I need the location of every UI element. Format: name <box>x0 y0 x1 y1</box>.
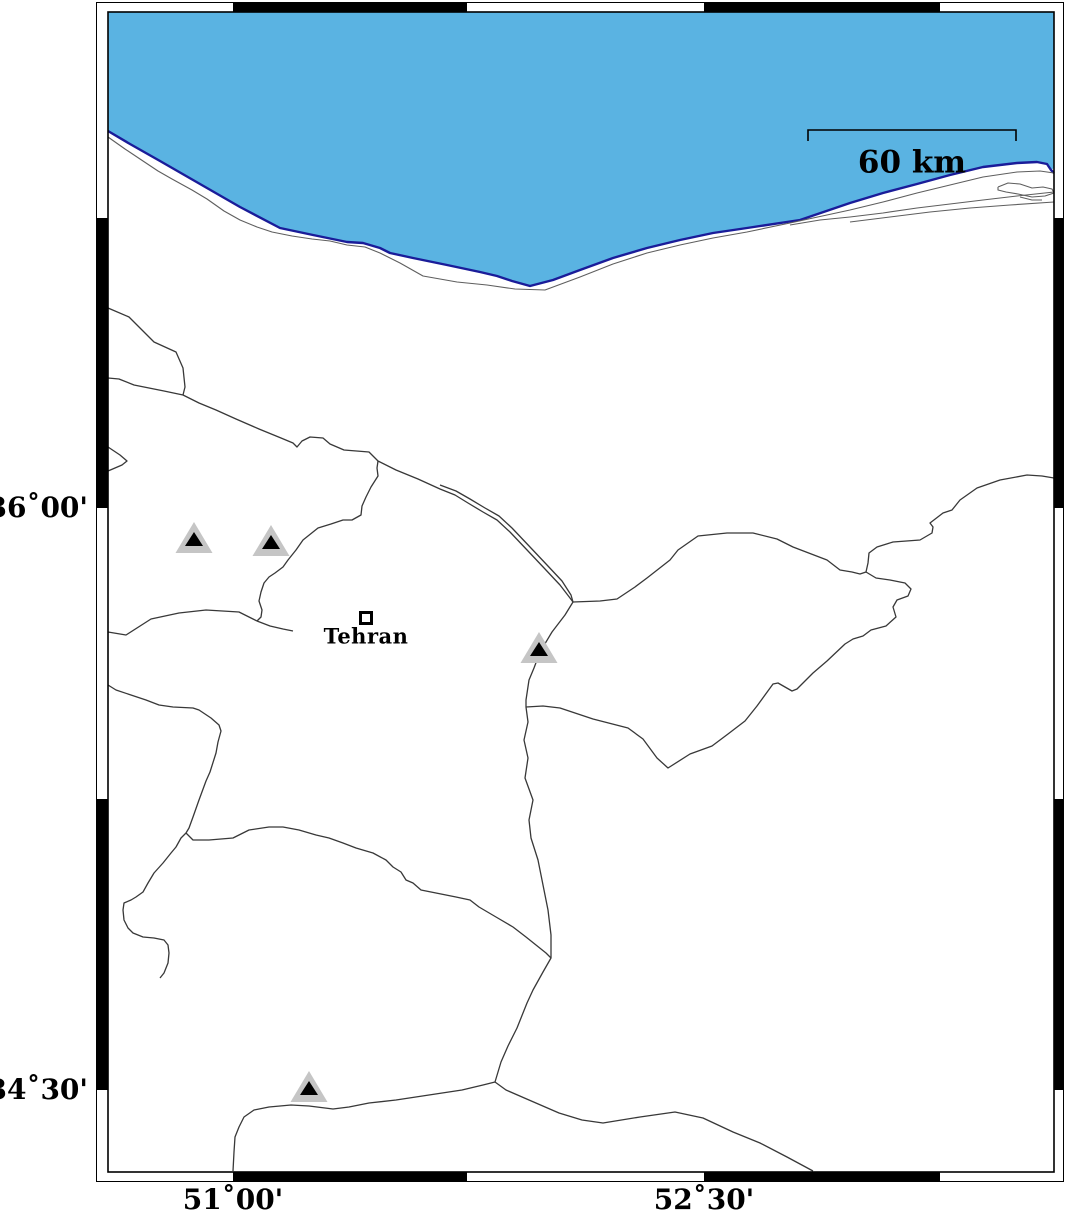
scalebar-label: 60 km <box>858 148 966 179</box>
lat-label-34-30: 34˚30' <box>0 1076 88 1104</box>
lon-label-52-30: 52˚30' <box>654 1186 755 1214</box>
map-canvas: 36˚00' 34˚30' 51˚00' 52˚30' 60 km Tehran <box>0 0 1066 1219</box>
coastline-gray-2 <box>850 202 1054 222</box>
boundary-line-2 <box>378 461 573 602</box>
city-label-tehran: Tehran <box>324 626 409 647</box>
boundary-line-3 <box>440 485 573 602</box>
lon-label-51-00: 51˚00' <box>183 1186 284 1214</box>
coastline-gray-4 <box>1020 197 1042 200</box>
frame-tick-left <box>97 218 109 508</box>
boundary-line-13 <box>257 621 293 631</box>
boundary-line-1 <box>108 378 378 461</box>
lat-label-36-00: 36˚00' <box>0 494 88 522</box>
boundary-line-8 <box>495 1082 813 1171</box>
frame-tick-bottom <box>704 1172 940 1182</box>
frame-tick-bottom <box>233 1172 467 1182</box>
frame-tick-top <box>704 3 940 13</box>
city-square-marker <box>361 613 372 624</box>
map-figure <box>0 0 1066 1219</box>
boundary-line-4 <box>573 475 1054 602</box>
frame-tick-left <box>97 799 109 1090</box>
boundary-line-0 <box>108 308 185 395</box>
frame-tick-right <box>1054 799 1064 1090</box>
frame-tick-right <box>1054 218 1064 508</box>
boundary-line-14 <box>108 447 127 471</box>
boundary-line-10 <box>108 685 221 978</box>
frame-tick-top <box>233 3 467 13</box>
boundary-line-11 <box>108 610 257 635</box>
boundary-line-7 <box>233 1082 495 1171</box>
boundary-line-9 <box>186 827 551 958</box>
boundary-line-6 <box>495 602 573 1082</box>
